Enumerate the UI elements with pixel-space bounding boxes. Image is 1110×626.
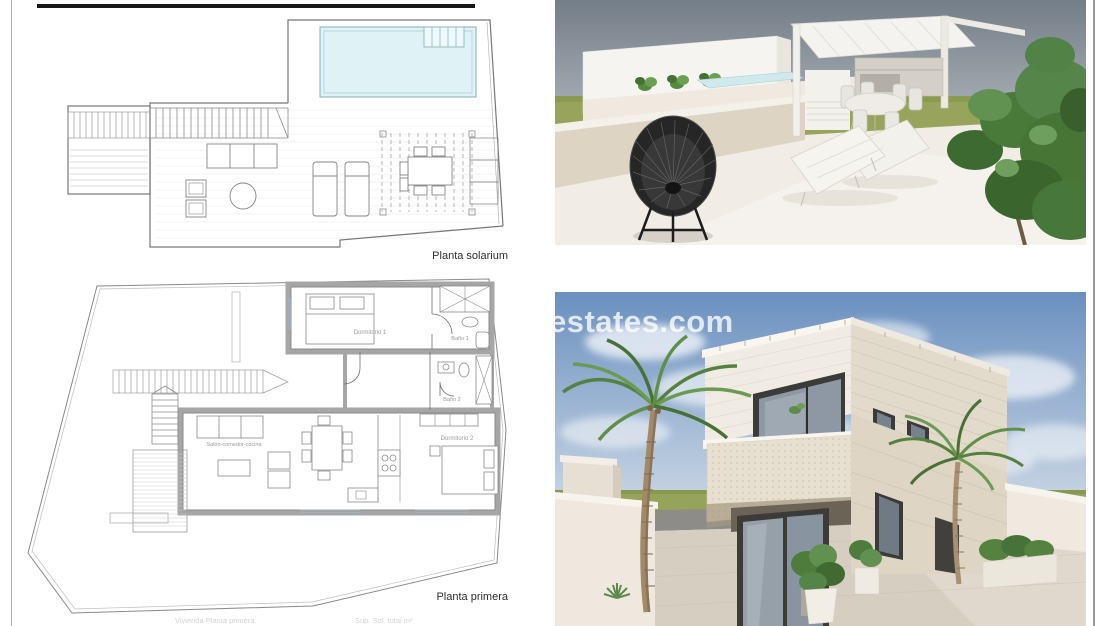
living-room-furniture: [197, 416, 352, 488]
solarium-plan-label: Planta solarium: [432, 250, 508, 262]
sofa: [197, 416, 263, 438]
column: [232, 292, 240, 362]
room-label-dormitorio1: Dormitorio 1: [354, 330, 387, 336]
sun-lounger: [345, 162, 369, 216]
lower-pergola-hatch: [110, 450, 187, 532]
dining-table: [408, 157, 452, 185]
kitchen-sink: [348, 488, 378, 502]
terrace-render-photo: [555, 0, 1086, 245]
bedroom2-furniture: [420, 414, 498, 494]
footer-caption-left: Vivienda Planta primera: [175, 616, 255, 625]
wardrobe: [420, 414, 478, 426]
footer-caption-right: Sup. Sol. total m²: [355, 616, 413, 625]
primera-plan-label: Planta primera: [436, 591, 508, 603]
storage-units: [470, 138, 498, 204]
toilet: [476, 332, 489, 348]
kitchen: [348, 415, 400, 502]
room-label-dormitorio2: Dormitorio 2: [441, 436, 474, 442]
coffee-table: [218, 460, 250, 476]
watermark-text: estates.com: [555, 304, 734, 339]
sideboard: [268, 452, 290, 469]
staircase: [152, 386, 178, 444]
sink: [462, 317, 478, 327]
dining-table: [312, 426, 342, 470]
left-balcony-hatch: [68, 112, 150, 186]
stove: [378, 450, 400, 476]
villa-render-scene: estates.com: [555, 292, 1086, 626]
solarium-stairs: [150, 108, 288, 138]
sun-lounger: [313, 162, 337, 216]
pool: [320, 27, 476, 97]
room-label-bano1: Baño 1: [451, 336, 468, 342]
sofa: [207, 144, 277, 168]
toilet: [459, 363, 469, 377]
sheet-right-border-line: [1093, 0, 1095, 626]
pool-steps: [424, 27, 464, 47]
room-label-salon: Salón-comedor-cocina: [206, 442, 262, 448]
terrace-render-scene: [555, 0, 1086, 245]
round-table: [230, 183, 256, 209]
listing-sheet: Planta solarium: [0, 0, 1110, 626]
outdoor-dining-set: [400, 147, 452, 195]
villa-exterior-render-photo: estates.com: [555, 292, 1086, 626]
room-label-bano2: Baño 2: [443, 397, 460, 403]
solarium-floor-plan: Planta solarium: [0, 0, 555, 270]
first-floor-plan: Dormitorio 1 Baño 1 Baño 2 Dormitorio 2 …: [0, 270, 555, 626]
terrace-hatch: [113, 370, 288, 393]
bath1-fixtures: [462, 317, 489, 348]
